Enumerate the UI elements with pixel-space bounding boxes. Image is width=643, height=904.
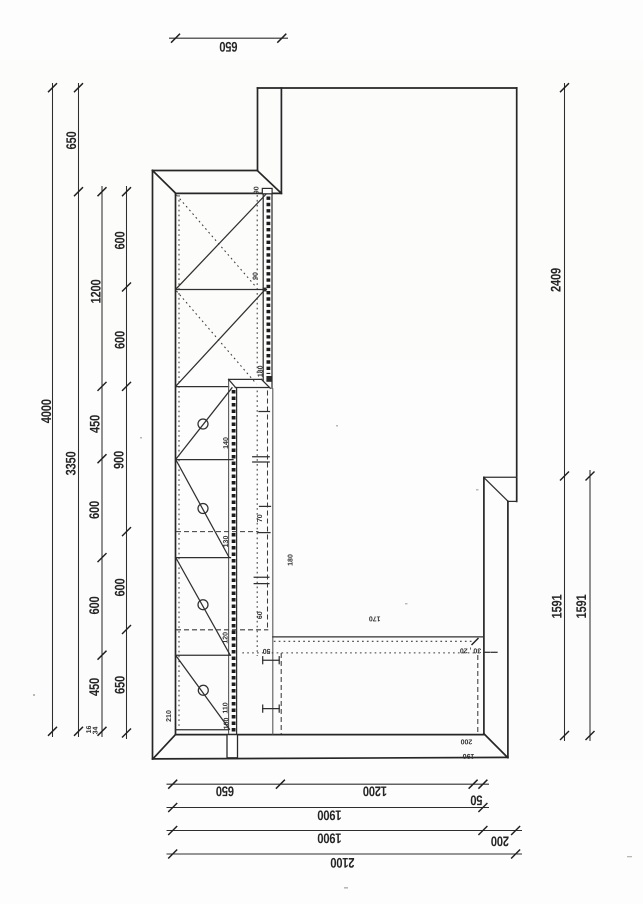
svg-text:90: 90 (252, 272, 259, 280)
svg-text:450: 450 (86, 415, 102, 433)
svg-text:650: 650 (219, 39, 237, 55)
svg-text:30 , 20: 30 , 20 (460, 646, 482, 653)
svg-text:650: 650 (216, 783, 234, 799)
svg-text:70: 70 (257, 514, 264, 522)
svg-text:600: 600 (112, 231, 128, 249)
svg-text:450: 450 (86, 678, 102, 696)
svg-text:1900: 1900 (317, 808, 341, 824)
svg-text:1200: 1200 (363, 784, 387, 800)
svg-text:120: 120 (223, 632, 230, 644)
svg-text:600: 600 (112, 331, 128, 349)
svg-text:210: 210 (166, 710, 173, 722)
svg-text:1591: 1591 (548, 594, 564, 618)
svg-text:1200: 1200 (87, 279, 103, 303)
svg-text:2409: 2409 (548, 268, 564, 292)
svg-text:60: 60 (257, 611, 264, 619)
svg-text:90: 90 (254, 186, 261, 194)
svg-text:180: 180 (287, 554, 294, 566)
svg-text:190: 190 (463, 752, 475, 759)
svg-text:600: 600 (86, 501, 102, 519)
svg-text:650: 650 (112, 676, 128, 694)
svg-text:130: 130 (223, 536, 230, 548)
svg-text:110: 110 (222, 702, 229, 713)
svg-text:200: 200 (491, 833, 509, 849)
svg-text:140: 140 (223, 437, 230, 449)
svg-text:600: 600 (112, 578, 128, 596)
svg-text:900: 900 (110, 451, 126, 469)
svg-text:50: 50 (263, 647, 271, 654)
svg-text:3350: 3350 (62, 451, 78, 475)
svg-text:50: 50 (470, 793, 482, 809)
svg-text:2100: 2100 (330, 855, 354, 871)
svg-text:170: 170 (369, 614, 381, 621)
svg-text:600: 600 (86, 596, 102, 614)
svg-text:100: 100 (223, 718, 230, 730)
svg-text:4000: 4000 (38, 399, 54, 423)
svg-text:200: 200 (460, 737, 472, 744)
svg-text:650: 650 (63, 131, 79, 149)
svg-text:180: 180 (257, 365, 264, 377)
svg-text:1900: 1900 (317, 831, 341, 847)
svg-text:1591: 1591 (573, 594, 589, 618)
svg-text:34: 34 (93, 727, 100, 735)
